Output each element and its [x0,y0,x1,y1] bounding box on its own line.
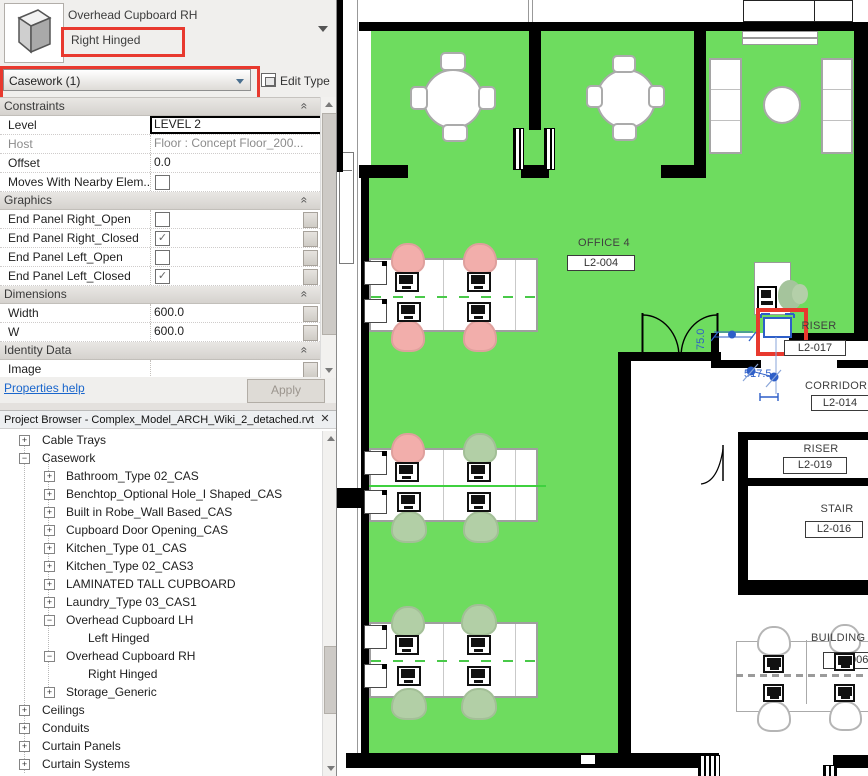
expand-icon[interactable]: + [44,579,55,590]
properties-palette: Overhead Cupboard RH Right Hinged Casewo… [0,0,337,405]
w-value-field[interactable]: 600.0 [150,323,322,341]
expand-icon[interactable]: + [44,471,55,482]
expand-icon[interactable]: + [19,435,30,446]
cube-icon [5,4,61,60]
type-preview-thumbnail[interactable] [4,3,64,63]
dimension-grip[interactable] [728,331,736,339]
tree-item-overhead-cupboard-rh[interactable]: −Overhead Cupboard RH [0,647,322,665]
panel-divider [0,403,336,410]
room-label-office4: OFFICE 4 [572,237,636,249]
scroll-up-icon[interactable] [325,102,333,107]
selected-type-name: Overhead Cupboard RH [68,8,197,22]
dimension-bracket [760,393,778,401]
property-row-end-panel-left-open: End Panel Left_Open [0,248,322,267]
tree-item-kitchen-type-02[interactable]: +Kitchen_Type 02_CAS3 [0,557,322,575]
expand-icon[interactable]: + [44,687,55,698]
property-row-image: Image [0,360,322,377]
highlight-box-type-variant: Right Hinged [61,27,185,57]
expand-icon[interactable]: + [19,759,30,770]
end-panel-right-open-checkbox[interactable] [155,212,170,227]
expand-icon[interactable]: + [44,489,55,500]
collapse-icon[interactable]: « [300,103,310,110]
expand-icon[interactable]: + [44,525,55,536]
room-tag[interactable]: L2-017 [784,340,846,356]
tree-item-storage-generic[interactable]: +Storage_Generic [0,683,322,701]
properties-grid: Constraints« Level LEVEL 2 Host Floor : … [0,97,322,377]
moves-with-nearby-checkbox[interactable] [155,175,170,190]
image-value-field[interactable] [150,360,322,377]
property-row-width: Width 600.0 [0,304,322,323]
project-browser-tree: +Cable Trays −Casework +Bathroom_Type 02… [0,431,322,776]
close-icon[interactable]: ✕ [318,412,332,425]
associate-parameter-button[interactable] [303,231,318,247]
associate-parameter-button[interactable] [303,306,318,322]
expand-icon[interactable]: + [44,597,55,608]
edit-type-icon [261,73,276,87]
room-tag[interactable]: L2-019 [783,457,847,474]
properties-scrollbar[interactable] [320,97,337,378]
scroll-down-icon[interactable] [327,766,335,771]
property-row-w: W 600.0 [0,323,322,342]
associate-parameter-button[interactable] [303,250,318,266]
properties-menu-arrow-icon[interactable] [318,26,328,32]
highlight-box-combobox [0,66,260,100]
collapse-icon[interactable]: « [300,291,310,298]
room-label-riser1: RISER [787,320,851,332]
scroll-down-icon[interactable] [325,368,333,373]
selected-type-variant: Right Hinged [71,33,140,47]
group-header-identity-data[interactable]: Identity Data« [0,342,322,360]
expand-icon[interactable]: + [44,507,55,518]
room-tag[interactable]: L2-016 [805,521,863,538]
property-row-end-panel-left-closed: End Panel Left_Closed ✓ [0,267,322,286]
property-row-moves-with-nearby: Moves With Nearby Elem... [0,173,322,192]
project-browser-title[interactable]: Project Browser - Complex_Model_ARCH_Wik… [0,410,336,429]
apply-button[interactable]: Apply [247,379,325,403]
expand-icon[interactable]: + [19,741,30,752]
property-row-end-panel-right-closed: End Panel Right_Closed ✓ [0,229,322,248]
dimension-text-75[interactable]: 75.0 [695,329,707,350]
tree-item-cable-trays[interactable]: +Cable Trays [0,431,322,449]
room-label-building: BUILDING [811,632,868,644]
level-value-field[interactable]: LEVEL 2 [150,116,322,134]
associate-parameter-button[interactable] [303,269,318,285]
collapse-node-icon[interactable]: − [44,651,55,662]
room-label-stair: STAIR [807,503,867,515]
property-row-end-panel-right-open: End Panel Right_Open [0,210,322,229]
expand-icon[interactable]: + [19,705,30,716]
room-label-corridor: CORRIDOR [805,380,868,392]
properties-help-link[interactable]: Properties help [4,381,85,395]
tree-item-overhead-cupboard-lh[interactable]: −Overhead Cupboard LH [0,611,322,629]
edit-type-button[interactable]: Edit Type [261,70,335,92]
end-panel-left-closed-checkbox[interactable]: ✓ [155,269,170,284]
host-value-field: Floor : Concept Floor_200... [150,135,322,153]
tree-item-curtain-systems[interactable]: +Curtain Systems [0,755,322,773]
type-selector-row: Casework (1) Edit Type [0,64,336,97]
scrollbar-thumb[interactable] [322,113,337,335]
associate-parameter-button[interactable] [303,212,318,228]
collapse-icon[interactable]: « [300,197,310,204]
room-tag[interactable]: L2-014 [811,395,868,411]
associate-parameter-button[interactable] [303,325,318,341]
tree-item-cupboard-door-opening[interactable]: +Cupboard Door Opening_CAS [0,521,322,539]
tree-item-conduits[interactable]: +Conduits [0,719,322,737]
expand-icon[interactable]: + [19,723,30,734]
door-swing-arc [701,449,723,484]
expand-icon[interactable]: + [44,561,55,572]
floor-plan-view[interactable]: 006 75.0 517.5 [336,0,868,776]
room-label-riser2: RISER [789,443,853,455]
project-browser: Project Browser - Complex_Model_ARCH_Wik… [0,410,337,776]
tree-item-built-in-robe[interactable]: +Built in Robe_Wall Based_CAS [0,503,322,521]
scroll-up-icon[interactable] [327,436,335,441]
tree-item-casework[interactable]: −Casework [0,449,322,467]
tree-item-laminated-tall-cupboard[interactable]: +LAMINATED TALL CUPBOARD [0,575,322,593]
group-header-constraints[interactable]: Constraints« [0,98,322,116]
tree-item-laundry-type-03[interactable]: +Laundry_Type 03_CAS1 [0,593,322,611]
tree-item-left-hinged[interactable]: Left Hinged [0,629,322,647]
revit-window: Overhead Cupboard RH Right Hinged Casewo… [0,0,868,776]
offset-value-field[interactable]: 0.0 [150,154,322,172]
width-value-field[interactable]: 600.0 [150,304,322,322]
tree-item-curtain-panels[interactable]: +Curtain Panels [0,737,322,755]
property-row-offset: Offset 0.0 [0,154,322,173]
associate-parameter-button[interactable] [303,362,318,377]
tree-item-kitchen-type-01[interactable]: +Kitchen_Type 01_CAS [0,539,322,557]
room-tag[interactable]: L2-004 [567,255,635,271]
collapse-node-icon[interactable]: − [44,615,55,626]
end-panel-right-closed-checkbox[interactable]: ✓ [155,231,170,246]
tree-item-bathroom-type-02[interactable]: +Bathroom_Type 02_CAS [0,467,322,485]
collapse-node-icon[interactable]: − [19,453,30,464]
group-header-graphics[interactable]: Graphics« [0,192,322,210]
tree-item-benchtop-optional-hole[interactable]: +Benchtop_Optional Hole_I Shaped_CAS [0,485,322,503]
group-header-dimensions[interactable]: Dimensions« [0,286,322,304]
tree-item-right-hinged[interactable]: Right Hinged [0,665,322,683]
tree-item-ceilings[interactable]: +Ceilings [0,701,322,719]
property-row-host: Host Floor : Concept Floor_200... [0,135,322,154]
expand-icon[interactable]: + [44,543,55,554]
annotation-overlay: 75.0 517.5 [337,0,868,776]
end-panel-left-open-checkbox[interactable] [155,250,170,265]
property-row-level: Level LEVEL 2 [0,116,322,135]
collapse-icon[interactable]: « [300,347,310,354]
door-swing-arc [643,315,679,357]
